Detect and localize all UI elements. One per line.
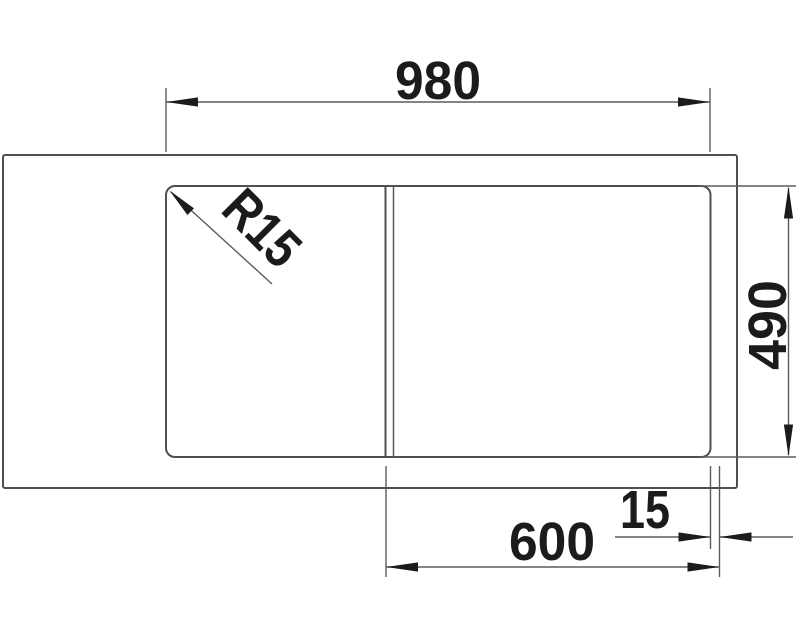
arrowhead-down-icon	[784, 425, 793, 457]
dimension-label-rim-offset: 15	[620, 480, 670, 540]
arrowhead-left-icon	[166, 97, 198, 106]
dimension-total-width: 980	[166, 51, 710, 152]
technical-drawing-page: 980 490 600 15	[0, 0, 800, 640]
outer-rim-outline	[3, 155, 737, 488]
dimension-label-bowl-width: 600	[509, 512, 595, 572]
radius-callout: R15	[170, 177, 313, 284]
dimension-total-depth: 490	[698, 186, 798, 457]
arrowhead-up-icon	[784, 187, 793, 219]
arrowhead-corner-icon	[170, 191, 195, 216]
arrowhead-left-icon	[386, 562, 418, 571]
dimension-rim-offset: 15	[615, 466, 793, 549]
radius-label: R15	[211, 177, 313, 279]
dimension-label-total-depth: 490	[738, 280, 798, 370]
dimension-label-total-width: 980	[395, 51, 481, 111]
arrowhead-right-icon	[678, 97, 710, 106]
arrowhead-right-icon	[688, 562, 720, 571]
arrowhead-right-icon	[679, 532, 711, 541]
sink-plan-drawing: 980 490 600 15	[0, 0, 800, 640]
arrowhead-left-icon	[720, 532, 752, 541]
